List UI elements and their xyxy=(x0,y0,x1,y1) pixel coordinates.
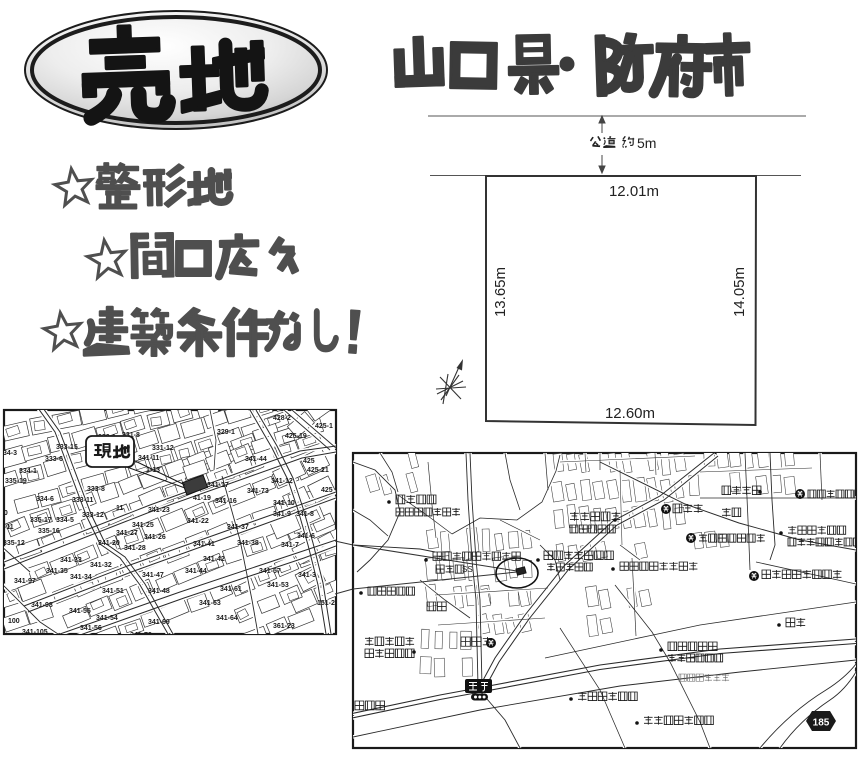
svg-text:334-1: 334-1 xyxy=(19,468,37,475)
svg-text:341-26: 341-26 xyxy=(144,534,166,541)
svg-text:341-69: 341-69 xyxy=(148,619,170,626)
svg-text:361-23: 361-23 xyxy=(273,623,295,630)
svg-text:341-44: 341-44 xyxy=(185,568,207,575)
svg-text:341-25: 341-25 xyxy=(132,522,154,529)
svg-text:341-73: 341-73 xyxy=(247,488,269,495)
svg-text:341-17: 341-17 xyxy=(207,482,229,489)
svg-text:425-1: 425-1 xyxy=(315,423,333,430)
svg-text:341-47: 341-47 xyxy=(142,572,164,579)
svg-text:341-61: 341-61 xyxy=(220,586,242,593)
svg-text:11: 11 xyxy=(116,505,124,512)
svg-text:341-37: 341-37 xyxy=(227,524,249,531)
svg-text:341-11: 341-11 xyxy=(138,455,160,462)
svg-text:151-2: 151-2 xyxy=(317,600,335,607)
svg-text:341-41: 341-41 xyxy=(193,541,215,548)
svg-text:12.60m: 12.60m xyxy=(605,405,655,422)
svg-text:12.01m: 12.01m xyxy=(609,183,659,200)
svg-text:329-1: 329-1 xyxy=(217,429,235,436)
svg-text:333-12: 333-12 xyxy=(82,512,104,519)
svg-text:333-11: 333-11 xyxy=(72,497,94,504)
svg-text:341-44: 341-44 xyxy=(245,456,267,463)
svg-text:341-64: 341-64 xyxy=(216,615,238,622)
svg-text:341-7: 341-7 xyxy=(281,542,299,549)
svg-text:334-5: 334-5 xyxy=(56,517,74,524)
svg-text:341-20: 341-20 xyxy=(98,540,120,547)
svg-text:34-3: 34-3 xyxy=(3,450,17,457)
svg-text:333-6: 333-6 xyxy=(45,456,63,463)
svg-text:341-12: 341-12 xyxy=(271,478,293,485)
svg-text:14.05m: 14.05m xyxy=(731,267,748,317)
svg-text:335-12: 335-12 xyxy=(3,540,25,547)
svg-text:341-8: 341-8 xyxy=(296,511,314,518)
svg-text:333-8: 333-8 xyxy=(87,486,105,493)
svg-text:13.65m: 13.65m xyxy=(492,267,509,317)
svg-text:5m: 5m xyxy=(637,135,656,151)
svg-text:341-3: 341-3 xyxy=(298,572,316,579)
svg-text:SS: SS xyxy=(462,565,473,574)
svg-text:425: 425 xyxy=(303,458,315,465)
svg-text:333-15: 333-15 xyxy=(56,444,78,451)
svg-text:341-98: 341-98 xyxy=(31,602,53,609)
svg-text:341-53: 341-53 xyxy=(267,582,289,589)
svg-text:428-2: 428-2 xyxy=(273,415,291,422)
svg-text:341-22: 341-22 xyxy=(187,518,209,525)
svg-text:331-12: 331-12 xyxy=(152,445,174,452)
svg-text:341-34: 341-34 xyxy=(70,574,92,581)
svg-text:341-48: 341-48 xyxy=(148,588,170,595)
svg-text:425-19: 425-19 xyxy=(285,433,307,440)
svg-text:41-19: 41-19 xyxy=(193,495,211,502)
svg-text:1-13: 1-13 xyxy=(146,467,160,474)
svg-text:185: 185 xyxy=(813,718,830,729)
svg-text:341-28: 341-28 xyxy=(124,545,146,552)
svg-text:341-9: 341-9 xyxy=(273,511,291,518)
svg-text:335-19: 335-19 xyxy=(5,478,27,485)
svg-text:341-27: 341-27 xyxy=(116,530,138,537)
svg-text:341-56: 341-56 xyxy=(80,625,102,632)
svg-text:341-55: 341-55 xyxy=(69,608,91,615)
svg-text:341-51: 341-51 xyxy=(102,588,124,595)
svg-text:100: 100 xyxy=(8,618,20,625)
svg-text:341-6: 341-6 xyxy=(297,533,315,540)
svg-text:341-33: 341-33 xyxy=(60,557,82,564)
svg-text:425: 425 xyxy=(321,487,333,494)
svg-text:341-32: 341-32 xyxy=(90,562,112,569)
svg-text:341-23: 341-23 xyxy=(148,507,170,514)
svg-text:341-16: 341-16 xyxy=(215,498,237,505)
svg-text:341-42: 341-42 xyxy=(203,556,225,563)
svg-text:334-6: 334-6 xyxy=(36,496,54,503)
svg-text:335-17: 335-17 xyxy=(30,517,52,524)
svg-text:341-35: 341-35 xyxy=(46,568,68,575)
svg-text:425-21: 425-21 xyxy=(307,467,329,474)
svg-text:335-16: 335-16 xyxy=(38,528,60,535)
svg-text:341-38: 341-38 xyxy=(237,540,259,547)
svg-text:341-54: 341-54 xyxy=(96,615,118,622)
svg-text:341-57: 341-57 xyxy=(259,568,281,575)
svg-text:341-97: 341-97 xyxy=(14,578,36,585)
svg-text:341-10: 341-10 xyxy=(273,500,295,507)
svg-text:341-63: 341-63 xyxy=(199,600,221,607)
